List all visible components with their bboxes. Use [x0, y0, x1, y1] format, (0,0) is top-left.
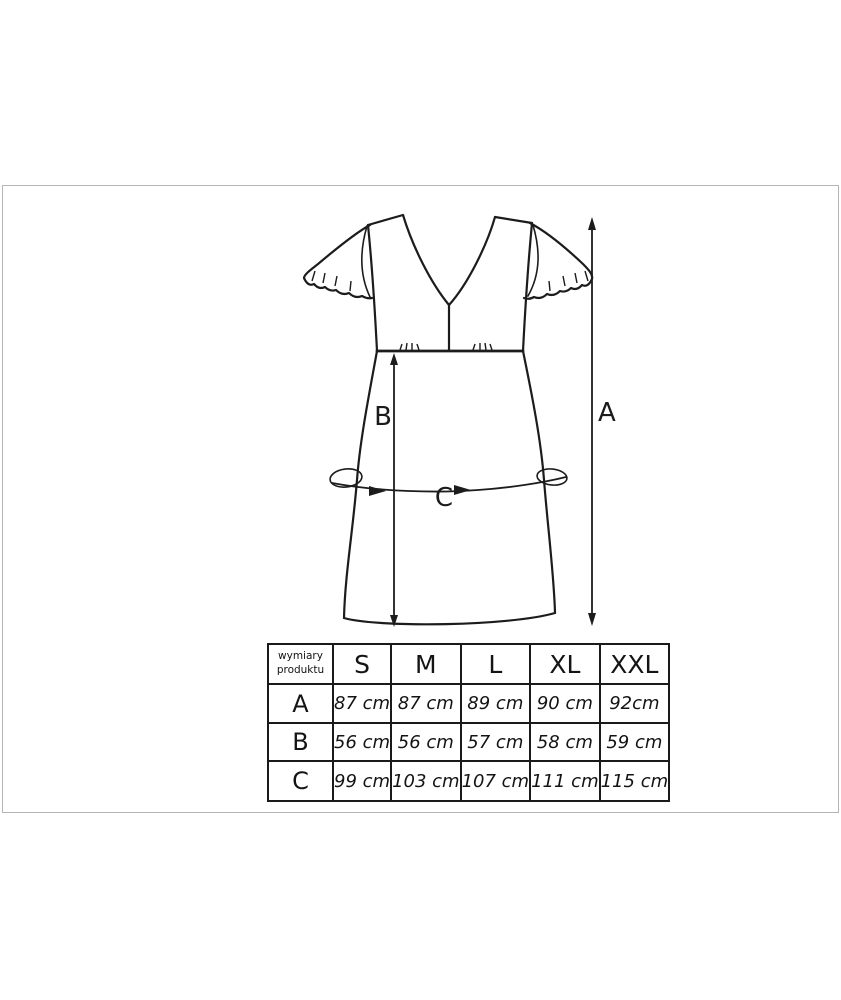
table-row-c: C 99 cm 103 cm 107 cm 111 cm 115 cm — [268, 761, 669, 801]
waist-gather-ticks-right — [473, 343, 492, 350]
arrowhead-right-icon — [454, 485, 471, 495]
measurement-cell: 99 cm — [333, 761, 391, 801]
arrowhead-right-icon — [369, 486, 386, 496]
table-row-a: A 87 cm 87 cm 89 cm 90 cm 92cm — [268, 684, 669, 723]
measurement-cell: 103 cm — [391, 761, 461, 801]
arrowhead-down-icon — [390, 615, 398, 627]
size-header-l: L — [461, 644, 531, 684]
measurement-label-b: B — [374, 402, 392, 432]
size-table: wymiary produktu S M L XL XXL A 87 cm 87… — [267, 643, 670, 802]
measurement-cell: 89 cm — [461, 684, 531, 723]
skirt-side-left — [344, 351, 377, 618]
measurement-cell: 107 cm — [461, 761, 531, 801]
measurement-cell: 92cm — [600, 684, 670, 723]
arrowhead-up-icon — [390, 353, 398, 365]
measurement-arrow-a: A — [588, 217, 616, 626]
dress-sleeve-left — [304, 225, 372, 298]
arrowhead-down-icon — [588, 613, 596, 626]
skirt-hem — [344, 613, 555, 624]
row-label-b: B — [268, 723, 333, 761]
neckline-left — [403, 215, 449, 305]
measurement-cell: 57 cm — [461, 723, 531, 761]
table-corner-header: wymiary produktu — [268, 644, 333, 684]
sleeve-right-gather-ticks — [549, 271, 588, 291]
measurement-cell: 111 cm — [530, 761, 600, 801]
waist-gather-ticks-left — [400, 343, 419, 350]
measurement-cell: 115 cm — [600, 761, 670, 801]
size-header-xl: XL — [530, 644, 600, 684]
measurement-cell: 56 cm — [391, 723, 461, 761]
neckline-right — [449, 217, 495, 305]
measurement-cell: 59 cm — [600, 723, 670, 761]
arrowhead-up-icon — [588, 217, 596, 230]
size-header-m: M — [391, 644, 461, 684]
size-table-header-row: wymiary produktu S M L XL XXL — [268, 644, 669, 684]
sleeve-left-ruffle-hem — [304, 278, 372, 298]
row-label-a: A — [268, 684, 333, 723]
bodice-side-left — [368, 225, 377, 351]
measurement-cell: 90 cm — [530, 684, 600, 723]
measurement-cell: 56 cm — [333, 723, 391, 761]
shoulder-seam-left — [368, 215, 403, 225]
bodice-side-right — [523, 223, 532, 351]
measurement-label-a: A — [598, 398, 616, 428]
sleeve-right-outer-edge — [530, 223, 592, 279]
dress-measurement-diagram: A B C — [0, 0, 841, 1000]
measurement-cell: 87 cm — [391, 684, 461, 723]
dress-sleeve-right — [524, 223, 592, 299]
measurement-arrow-c: C — [329, 467, 568, 513]
measurement-cell: 87 cm — [333, 684, 391, 723]
shoulder-seam-right — [495, 217, 532, 223]
dress-bodice — [368, 215, 532, 351]
measurement-cell: 58 cm — [530, 723, 600, 761]
measurement-label-c: C — [435, 483, 453, 513]
row-label-c: C — [268, 761, 333, 801]
sleeve-left-outer-edge — [304, 225, 370, 278]
size-header-xxl: XXL — [600, 644, 670, 684]
table-row-b: B 56 cm 56 cm 57 cm 58 cm 59 cm — [268, 723, 669, 761]
size-header-s: S — [333, 644, 391, 684]
